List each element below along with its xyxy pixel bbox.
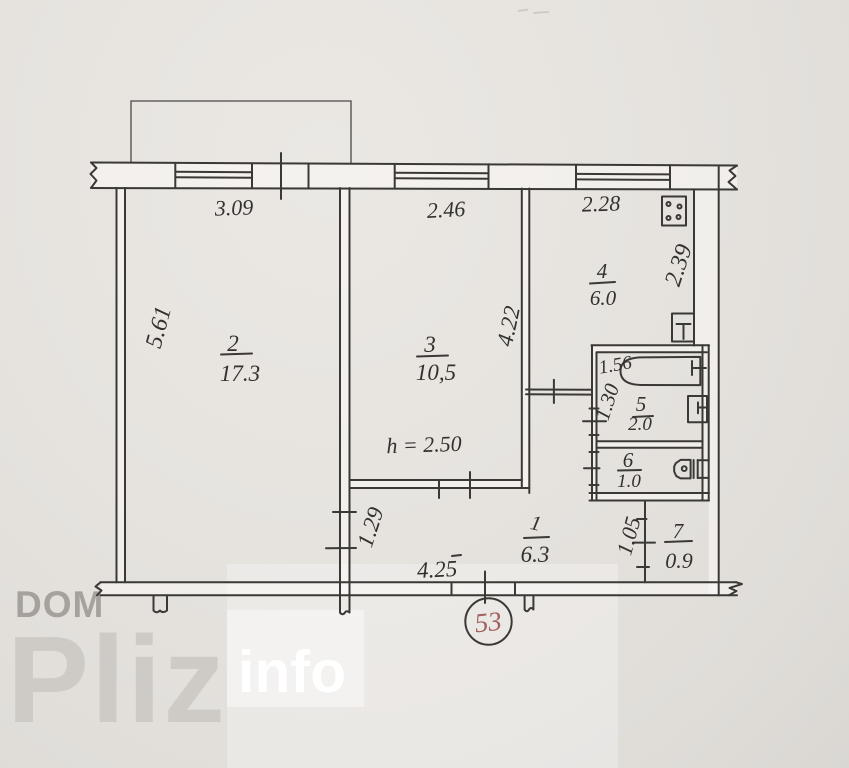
svg-text:2.0: 2.0	[628, 414, 652, 435]
svg-text:10,5: 10,5	[416, 360, 456, 385]
svg-text:1.0: 1.0	[617, 471, 641, 492]
svg-text:6: 6	[623, 448, 634, 472]
svg-text:4.22: 4.22	[492, 304, 525, 349]
svg-text:0.9: 0.9	[665, 548, 693, 573]
svg-text:6.0: 6.0	[590, 286, 617, 310]
svg-text:53: 53	[473, 606, 503, 639]
svg-text:2.39: 2.39	[660, 241, 698, 289]
svg-text:2.46: 2.46	[426, 196, 466, 223]
svg-text:info: info	[238, 639, 346, 705]
svg-text:3: 3	[423, 332, 436, 357]
svg-text:1.05: 1.05	[611, 514, 645, 558]
svg-text:2.28: 2.28	[581, 190, 620, 216]
svg-text:Pliz: Pliz	[7, 612, 227, 749]
svg-text:5.61: 5.61	[141, 304, 177, 351]
svg-text:3.09: 3.09	[213, 194, 253, 220]
svg-text:1: 1	[528, 510, 543, 536]
svg-text:5: 5	[636, 392, 647, 416]
svg-text:1.29: 1.29	[352, 504, 388, 550]
svg-text:1.56: 1.56	[597, 352, 634, 379]
svg-text:4: 4	[597, 259, 608, 283]
svg-text:2: 2	[227, 331, 239, 356]
svg-text:4.25: 4.25	[416, 556, 458, 583]
svg-text:7: 7	[673, 519, 685, 543]
svg-text:h = 2.50: h = 2.50	[386, 431, 462, 459]
svg-text:6.3: 6.3	[521, 542, 550, 567]
svg-text:17.3: 17.3	[220, 361, 260, 386]
